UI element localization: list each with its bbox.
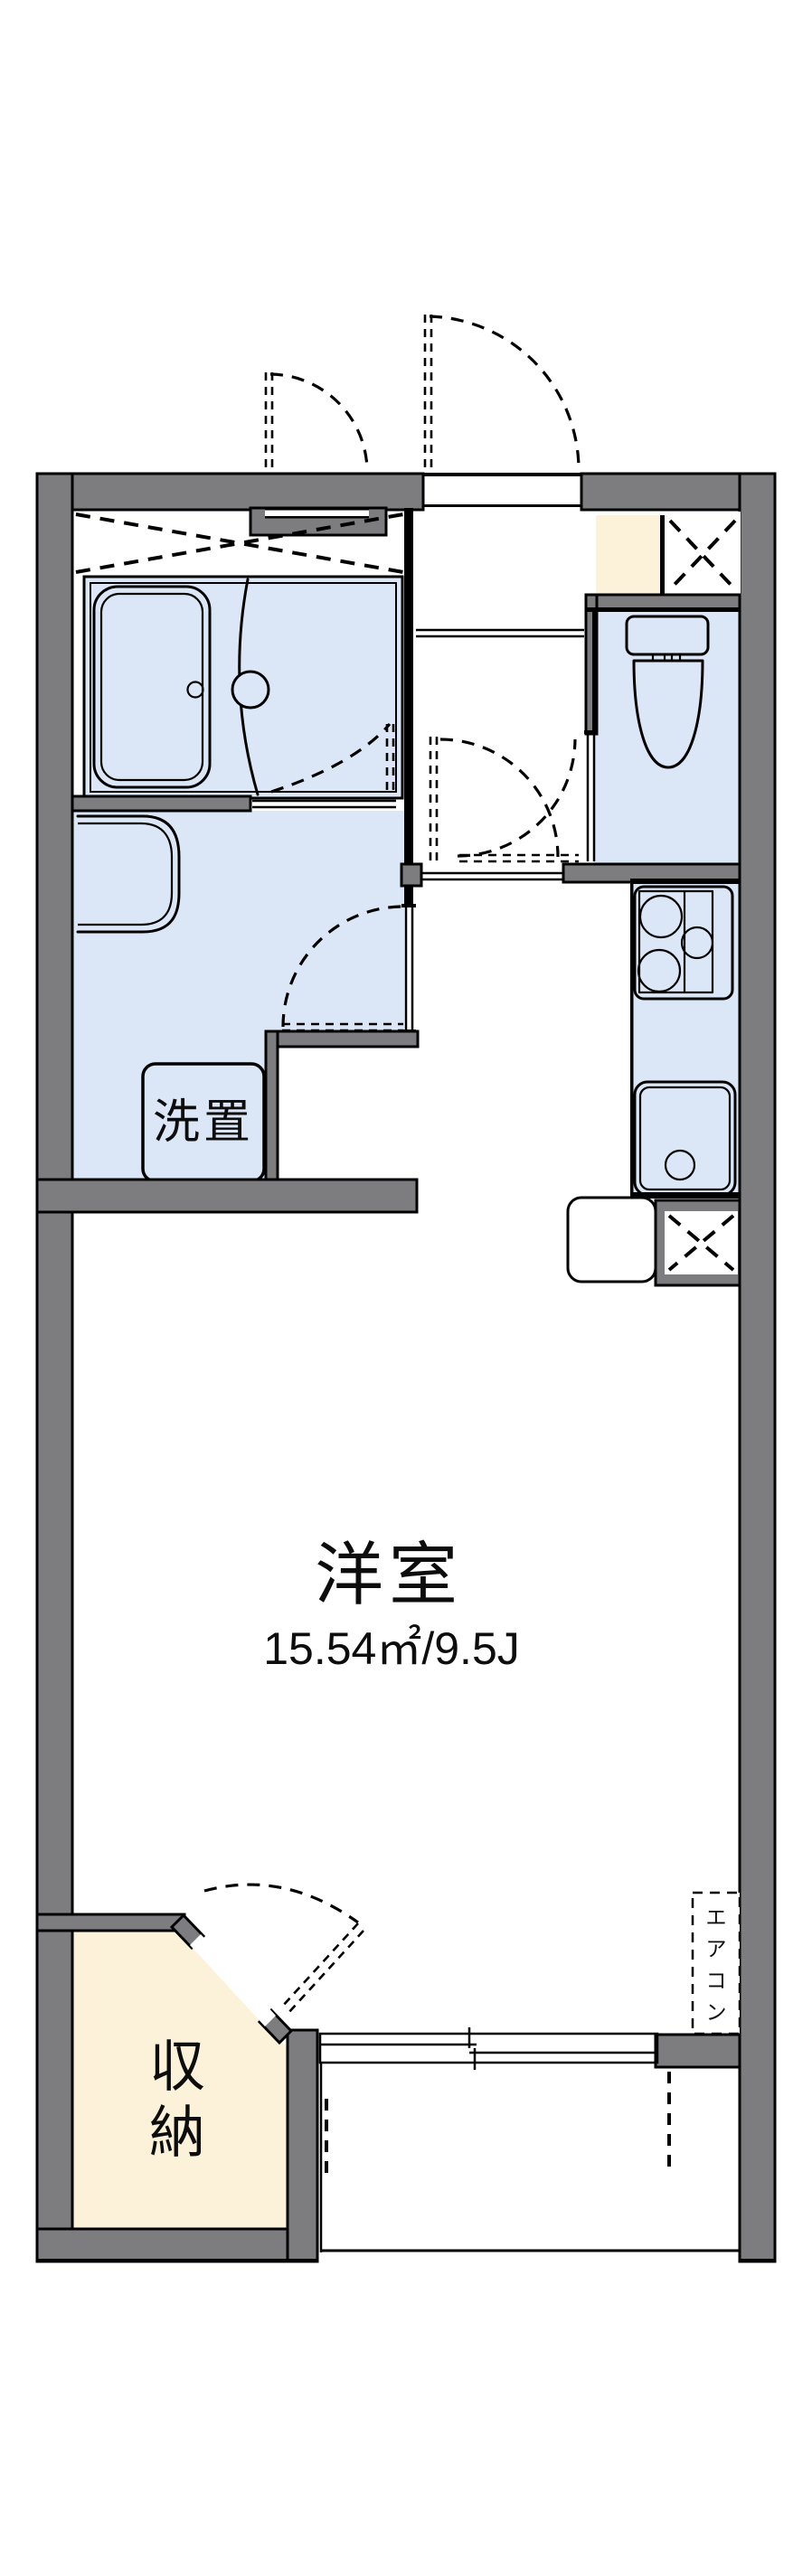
toilet-room-border-left: [592, 607, 597, 734]
washroom-bottom-wall: [37, 1180, 417, 1212]
floor-plan-canvas: 洗置 洋室 15.54㎡/9.5J 収 納 エ ア: [0, 0, 812, 2576]
outer-wall-right: [740, 474, 775, 2261]
main-room-label: 洋室: [315, 1537, 463, 1614]
washer-space-label: 洗置: [153, 1096, 254, 1149]
washroom-corner-wall-h: [266, 1031, 418, 1047]
bath-hall-wall: [404, 508, 413, 907]
storage-top-wall: [37, 1914, 184, 1931]
cabinet-divider: [660, 515, 665, 595]
balcony: [320, 2063, 740, 2252]
hall-wall-stub-left: [401, 864, 421, 886]
entrance-opening: [425, 476, 580, 504]
south-wall-stub: [656, 2035, 740, 2067]
ceiling-open-x-marks: [76, 514, 403, 572]
toilet-room-border-top: [586, 607, 740, 612]
entrance-opening-sill-line: [423, 504, 581, 507]
storage-label-char2: 納: [149, 2102, 205, 2165]
plan-bottom-edge-right: [740, 2259, 775, 2262]
aircon-char3: コ: [706, 1969, 727, 1992]
sliding-window: [320, 2027, 657, 2070]
porch-window: [265, 510, 369, 517]
storage-label-char1: 収: [149, 2036, 205, 2099]
hall-door-swings: [430, 737, 579, 863]
shoe-cabinet: [596, 515, 660, 595]
storage-right-wall: [288, 2030, 317, 2261]
toilet-room-floor: [593, 609, 740, 864]
main-room-area-label: 15.54㎡/9.5J: [263, 1623, 520, 1674]
floor-plan-page: 洗置 洋室 15.54㎡/9.5J 収 納 エ ア: [0, 0, 812, 2576]
genkan-step-line: [416, 630, 584, 636]
porch-window-line-bottom: [265, 516, 369, 519]
outer-wall-bottom-left: [37, 2229, 317, 2261]
fridge-space: [568, 1198, 656, 1282]
aircon-char4: ン: [706, 2000, 727, 2024]
hall-corridor-sill: [420, 873, 563, 879]
bath-door-knob: [232, 672, 269, 708]
toilet-top-wall: [586, 595, 740, 609]
kitchen-counter-top-edge: [630, 879, 740, 884]
entrance-door-swing: [425, 315, 579, 470]
bathroom-bottom-wall: [72, 796, 250, 811]
outer-wall-left: [37, 474, 72, 2261]
plan-bottom-edge-left: [37, 2259, 317, 2262]
kitchen-counter-left-edge: [630, 879, 634, 1198]
porch-door-swing: [266, 372, 367, 471]
porch-window-line-top: [265, 508, 369, 511]
aircon-char1: エ: [706, 1905, 727, 1929]
entrance-opening-outer-line: [423, 473, 581, 476]
aircon-char2: ア: [706, 1937, 727, 1960]
outer-wall-top-left: [37, 474, 423, 510]
